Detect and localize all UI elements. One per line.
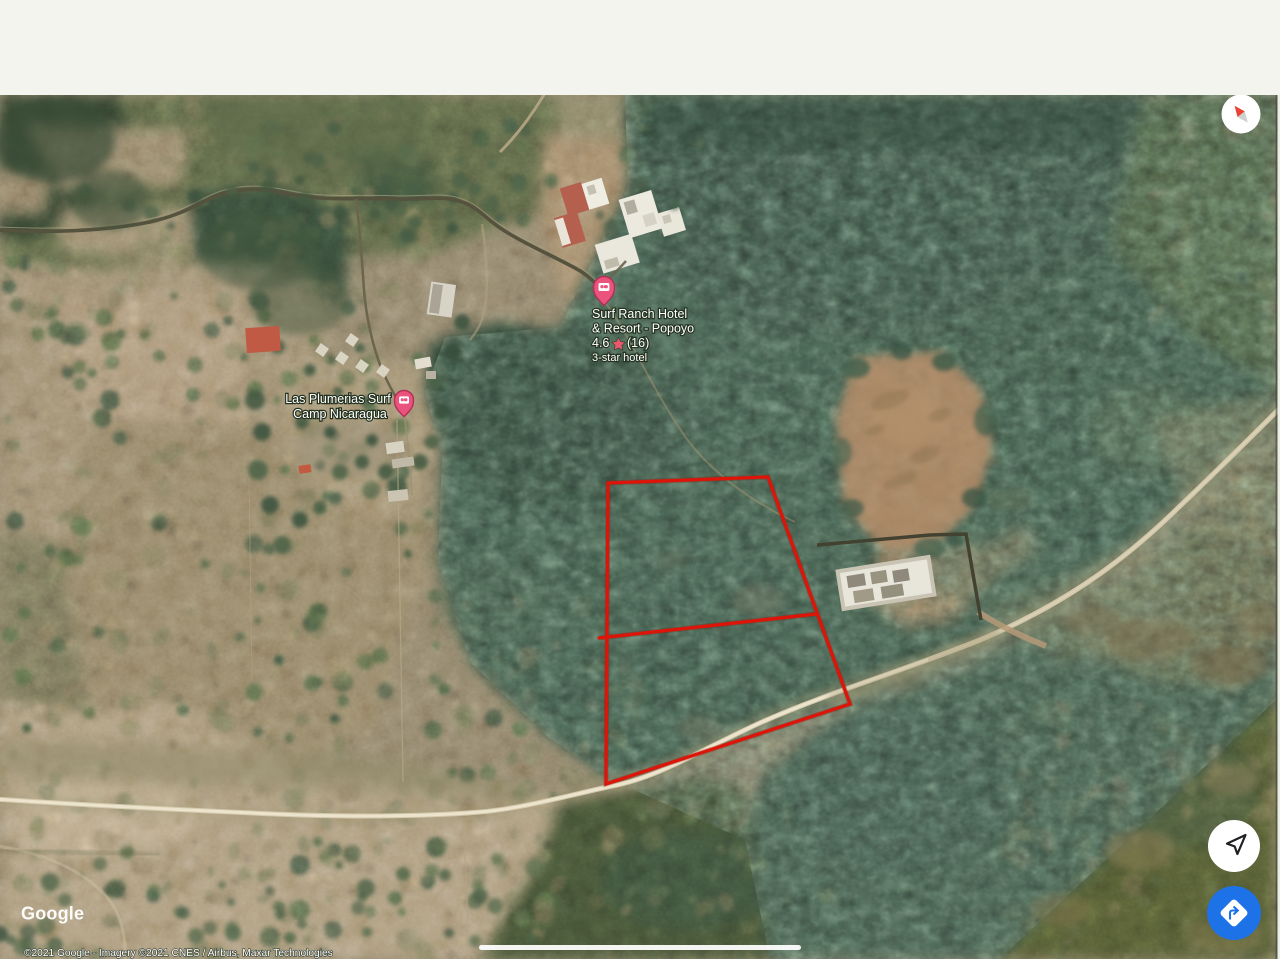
svg-text:& Resort - Popoyo: & Resort - Popoyo — [592, 322, 694, 336]
svg-text:4.6: 4.6 — [592, 336, 609, 350]
svg-text:Surf Ranch Hotel: Surf Ranch Hotel — [592, 307, 687, 321]
svg-text:Google: Google — [21, 904, 84, 924]
svg-text:©2021 Google - Imagery ©2021 C: ©2021 Google - Imagery ©2021 CNES / Airb… — [24, 948, 333, 959]
svg-text:Camp Nicaragua: Camp Nicaragua — [293, 407, 387, 421]
svg-text:3-star hotel: 3-star hotel — [592, 352, 647, 364]
svg-text:(16): (16) — [627, 336, 649, 350]
svg-text:Las Plumerias Surf: Las Plumerias Surf — [285, 392, 391, 406]
